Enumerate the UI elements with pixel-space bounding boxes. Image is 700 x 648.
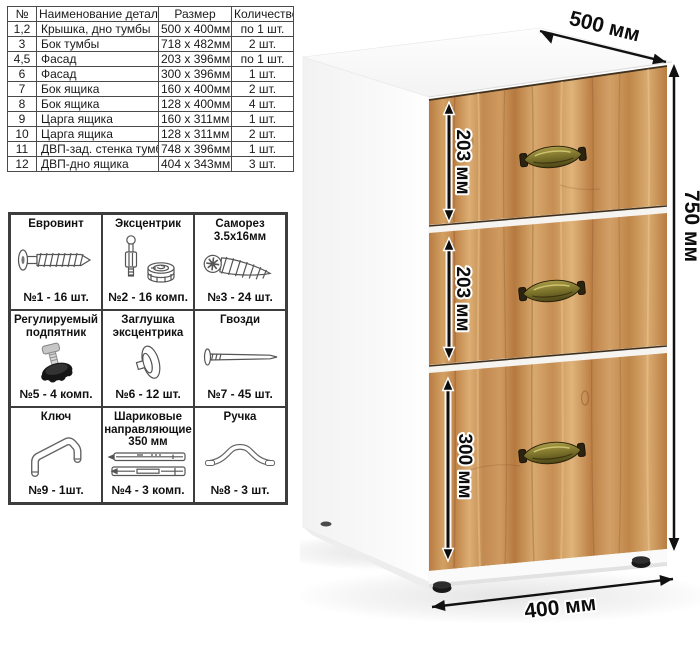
adjustable-foot-icon [25, 340, 87, 387]
hardware-item-nails: Гвозди №7 - 45 шт. [194, 310, 286, 406]
header-num: № [8, 7, 37, 22]
hardware-item-eccentric: Эксцентрик [102, 214, 194, 310]
table-row: 10Царга ящика128 x 311мм2 шт. [8, 127, 294, 142]
hardware-item-count: №3 - 24 шт. [207, 290, 273, 304]
hardware-item-key: Ключ №9 - 1шт. [10, 407, 102, 503]
table-row: 6Фасад300 x 396мм1 шт. [8, 67, 294, 82]
handle-icon [203, 424, 277, 483]
hardware-item-handle: Ручка №8 - 3 шт. [194, 407, 286, 503]
hardware-item-title: Эксцентрик [115, 218, 181, 231]
euro-screw-icon [15, 231, 97, 290]
dimension-drawer2-label: 203 мм [452, 266, 473, 331]
hardware-item-cam-cover: Заглушка эксцентрика №6 - 12 шт. [102, 310, 194, 406]
hardware-item-count: №8 - 3 шт. [211, 483, 270, 497]
hardware-grid: Евровинт №1 - 16 шт. Эксцентрик [8, 212, 288, 505]
hardware-item-screw: Саморез 3.5х16мм №3 - 24 шт. [194, 214, 286, 310]
hardware-item-title: Ключ [41, 411, 71, 424]
parts-table-header-row: № Наименование детали Размер Количество [8, 7, 294, 22]
cabinet-side-panel [303, 57, 429, 582]
self-tapping-screw-icon [202, 244, 278, 291]
dimension-height-arrow: 750 мм [669, 64, 700, 551]
hardware-item-euro-screw: Евровинт №1 - 16 шт. [10, 214, 102, 310]
header-part-name: Наименование детали [37, 7, 159, 22]
hardware-item-count: №4 - 3 комп. [111, 483, 184, 497]
hardware-item-count: №2 - 16 комп. [108, 290, 188, 304]
table-row: 4,5Фасад203 x 396ммпо 1 шт. [8, 52, 294, 67]
dimension-drawer1-label: 203 мм [452, 129, 473, 194]
table-row: 11ДВП-зад. стенка тумбы748 x 396мм1 шт. [8, 142, 294, 157]
hardware-item-title: Гвозди [220, 314, 260, 327]
ball-bearing-slides-icon [107, 449, 189, 483]
hardware-item-foot: Регулируемый подпятник [10, 310, 102, 406]
cabinet-illustration: 500 мм 750 мм 400 мм 203 мм [300, 0, 700, 648]
hardware-item-title: Саморез 3.5х16мм [197, 218, 283, 244]
hardware-item-count: №1 - 16 шт. [23, 290, 89, 304]
parts-table: № Наименование детали Размер Количество … [7, 6, 294, 172]
table-row: 12ДВП-дно ящика404 x 343мм3 шт. [8, 157, 294, 172]
eccentric-cam-icon [115, 231, 181, 290]
table-row: 9Царга ящика160 x 311мм1 шт. [8, 112, 294, 127]
table-row: 8Бок ящика128 x 400мм4 шт. [8, 97, 294, 112]
hardware-item-count: №7 - 45 шт. [207, 387, 273, 401]
hardware-item-title: Евровинт [28, 218, 84, 231]
hardware-item-title: Регулируемый подпятник [13, 314, 99, 340]
allen-key-icon [25, 424, 87, 483]
hardware-item-count: №5 - 4 комп. [19, 387, 92, 401]
table-row: 1,2Крышка, дно тумбы500 x 400ммпо 1 шт. [8, 22, 294, 37]
assembly-instruction-page: № Наименование детали Размер Количество … [0, 0, 700, 648]
cam-cover-icon [125, 340, 171, 387]
dimension-drawer3-label: 300 мм [454, 433, 475, 498]
table-row: 3Бок тумбы718 x 482мм2 шт. [8, 37, 294, 52]
header-qty: Количество [232, 7, 294, 22]
header-size: Размер [159, 7, 232, 22]
table-row: 7Бок ящика160 x 400мм2 шт. [8, 82, 294, 97]
hardware-item-title: Заглушка эксцентрика [105, 314, 191, 340]
nail-icon [200, 327, 280, 386]
hardware-item-slides: Шариковые направляющие 350 мм №4 - 3 [102, 407, 194, 503]
hardware-item-title: Ручка [224, 411, 257, 424]
hardware-item-title: Шариковые направляющие 350 мм [104, 411, 192, 450]
hardware-item-count: №6 - 12 шт. [115, 387, 181, 401]
hardware-item-count: №9 - 1шт. [28, 483, 84, 497]
dimension-height-label: 750 мм [680, 190, 700, 262]
